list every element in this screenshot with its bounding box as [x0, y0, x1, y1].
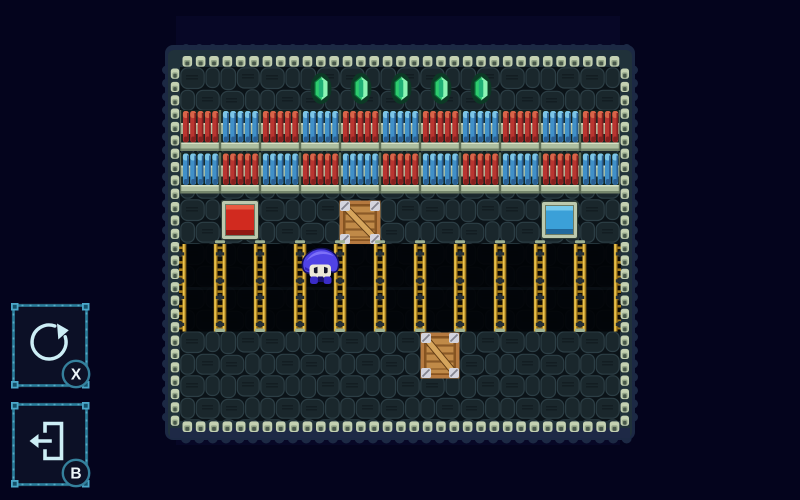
svg-text:X: X: [71, 367, 82, 384]
svg-text:B: B: [70, 466, 81, 483]
